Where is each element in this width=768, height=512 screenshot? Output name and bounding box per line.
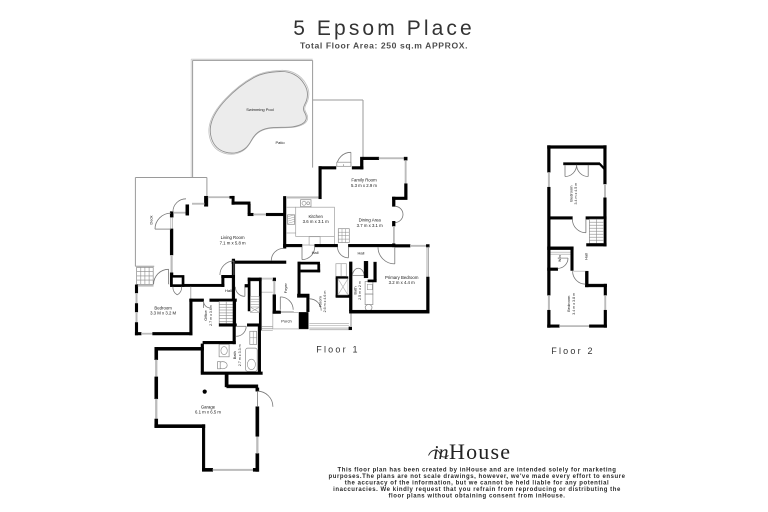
svg-text:3.6 m x 3.1 m: 3.6 m x 3.1 m	[303, 219, 329, 224]
svg-text:Hall: Hall	[358, 250, 365, 255]
svg-text:W.in: W.in	[558, 255, 562, 262]
svg-text:Hall: Hall	[225, 288, 232, 293]
svg-text:House: House	[449, 439, 511, 464]
svg-text:in: in	[433, 442, 449, 464]
svg-text:3.7 m x 3.1 m: 3.7 m x 3.1 m	[357, 223, 383, 228]
svg-text:Room: Room	[317, 295, 322, 306]
svg-text:Deck: Deck	[149, 215, 154, 224]
svg-text:2.7 m x 3.3 m: 2.7 m x 3.3 m	[238, 344, 242, 366]
svg-text:Bedroom: Bedroom	[566, 295, 571, 312]
svg-text:Bedroom: Bedroom	[568, 185, 573, 202]
svg-text:6.1 m x 6.5 m: 6.1 m x 6.5 m	[195, 410, 221, 415]
svg-text:3.4 m x 3.8 m: 3.4 m x 3.8 m	[572, 293, 576, 315]
svg-text:Bath: Bath	[352, 286, 357, 294]
svg-text:This floor plan has been creat: This floor plan has been created by inHo…	[338, 468, 617, 474]
svg-text:7.1 m x 5.8 m: 7.1 m x 5.8 m	[220, 240, 246, 245]
svg-text:Floor 2: Floor 2	[551, 346, 594, 356]
svg-text:the accuracy of the informatio: the accuracy of the information, but we …	[345, 481, 609, 487]
svg-text:Swimming Pool: Swimming Pool	[246, 107, 274, 112]
svg-text:2.5 m x 2 m: 2.5 m x 2 m	[358, 281, 362, 300]
svg-text:inaccuracies. We kindly reques: inaccuracies. We kindly request that you…	[333, 487, 621, 493]
svg-text:3.4 m x 4.5 m: 3.4 m x 4.5 m	[574, 183, 578, 205]
svg-text:2.6 m x 4.6 m: 2.6 m x 4.6 m	[323, 291, 327, 313]
svg-text:Patio: Patio	[275, 140, 285, 145]
svg-text:Floor 1: Floor 1	[316, 345, 359, 355]
svg-text:3.3 M x 3.2 M: 3.3 M x 3.2 M	[150, 311, 176, 316]
svg-text:5.3 m x 2.9 m: 5.3 m x 2.9 m	[351, 183, 377, 188]
svg-text:Office: Office	[203, 310, 208, 321]
svg-text:floor plans without obtaining: floor plans without obtaining consent fr…	[388, 494, 565, 500]
svg-text:Foyer: Foyer	[283, 283, 288, 294]
svg-text:2.7 m x 3.6m: 2.7 m x 3.6m	[209, 305, 213, 326]
svg-text:Porch: Porch	[281, 318, 291, 323]
svg-text:purposes.The plans are not sca: purposes.The plans are not scale drawing…	[329, 474, 626, 480]
svg-text:3.2 m x 4.4 m: 3.2 m x 4.4 m	[389, 280, 415, 285]
svg-text:Total Floor Area: 250 sq.m APP: Total Floor Area: 250 sq.m APPROX.	[300, 41, 468, 51]
svg-text:Hall: Hall	[584, 253, 589, 260]
svg-text:Bath: Bath	[232, 351, 237, 359]
svg-text:Hall: Hall	[312, 250, 319, 255]
svg-text:5 Epsom Place: 5 Epsom Place	[293, 17, 475, 40]
